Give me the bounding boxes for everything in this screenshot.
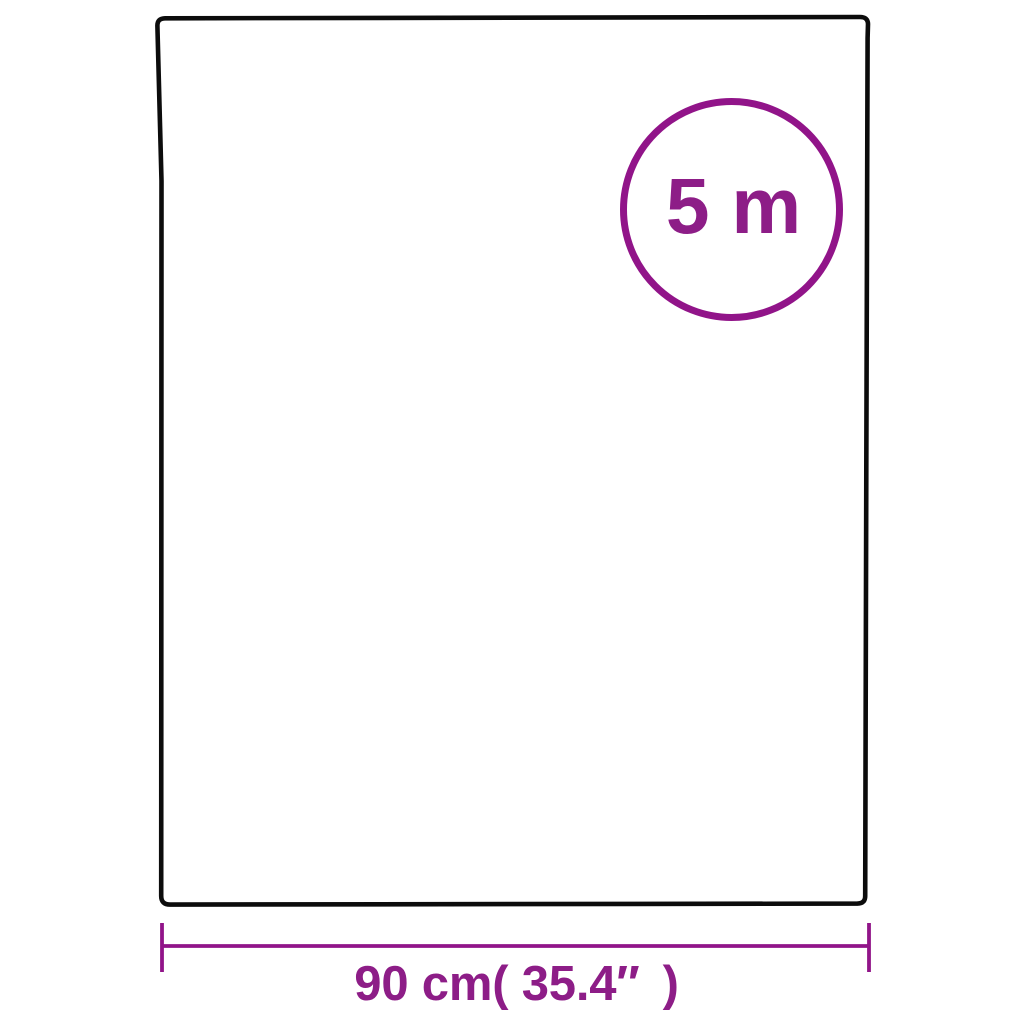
svg-text:90 cm( 35.4″ ): 90 cm( 35.4″ ) <box>354 957 678 1011</box>
svg-text:5 m: 5 m <box>666 162 801 250</box>
